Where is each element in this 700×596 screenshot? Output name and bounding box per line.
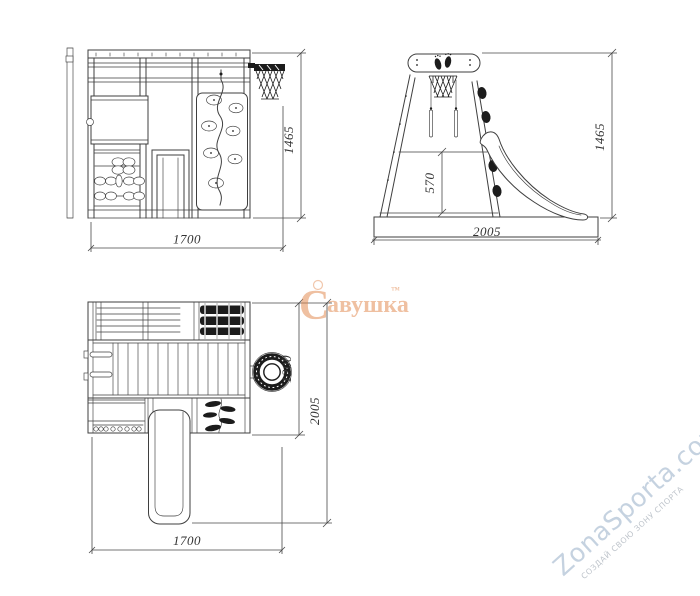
watermark-savushka: С авушка ™	[299, 281, 409, 330]
plan-deck-planks	[88, 343, 250, 398]
dim-front-height: 1465	[252, 49, 306, 222]
dim-side-deck-label: 570	[422, 173, 437, 194]
dim-side-height: 1465	[482, 49, 617, 222]
technical-drawing-canvas: 1465 1700	[0, 0, 700, 596]
front-view: 1465 1700	[66, 48, 306, 252]
slide-side	[480, 132, 587, 220]
plan-climbing-holds	[203, 399, 236, 433]
dim-side-length-label: 2005	[473, 224, 501, 239]
dim-plan-body-label: 1200	[279, 355, 294, 383]
side-panel-rail	[66, 48, 73, 218]
dim-plan-width-label: 1700	[173, 533, 201, 548]
side-view: 570 2005 1465	[371, 49, 617, 245]
savushka-initial: С	[299, 283, 329, 329]
dim-side-length: 2005	[371, 224, 601, 245]
slide-front	[152, 150, 189, 218]
play-panel	[87, 96, 149, 144]
top-beam-side	[408, 54, 480, 72]
plan-view: 1200 2005 1700	[84, 299, 332, 554]
top-beam	[88, 50, 250, 58]
savushka-text: авушка	[327, 292, 409, 318]
savushka-trademark: ™	[391, 285, 400, 295]
slide-top	[149, 410, 191, 524]
watermark-zonasporta: ZonaSporta.com СОЗДАЙ СВОЮ ЗОНУ СПОРТА	[548, 414, 700, 591]
dim-plan-length-label: 2005	[307, 397, 322, 425]
dim-side-height-label: 1465	[592, 123, 607, 151]
gym-rings	[429, 80, 457, 137]
dim-side-deck-height: 570	[422, 148, 446, 217]
basketball-hoop-front	[248, 63, 285, 99]
dim-front-width-label: 1700	[173, 232, 201, 247]
basketball-net-side	[429, 76, 457, 97]
plan-holds-grid	[200, 303, 244, 339]
abacus-panel	[94, 150, 145, 206]
